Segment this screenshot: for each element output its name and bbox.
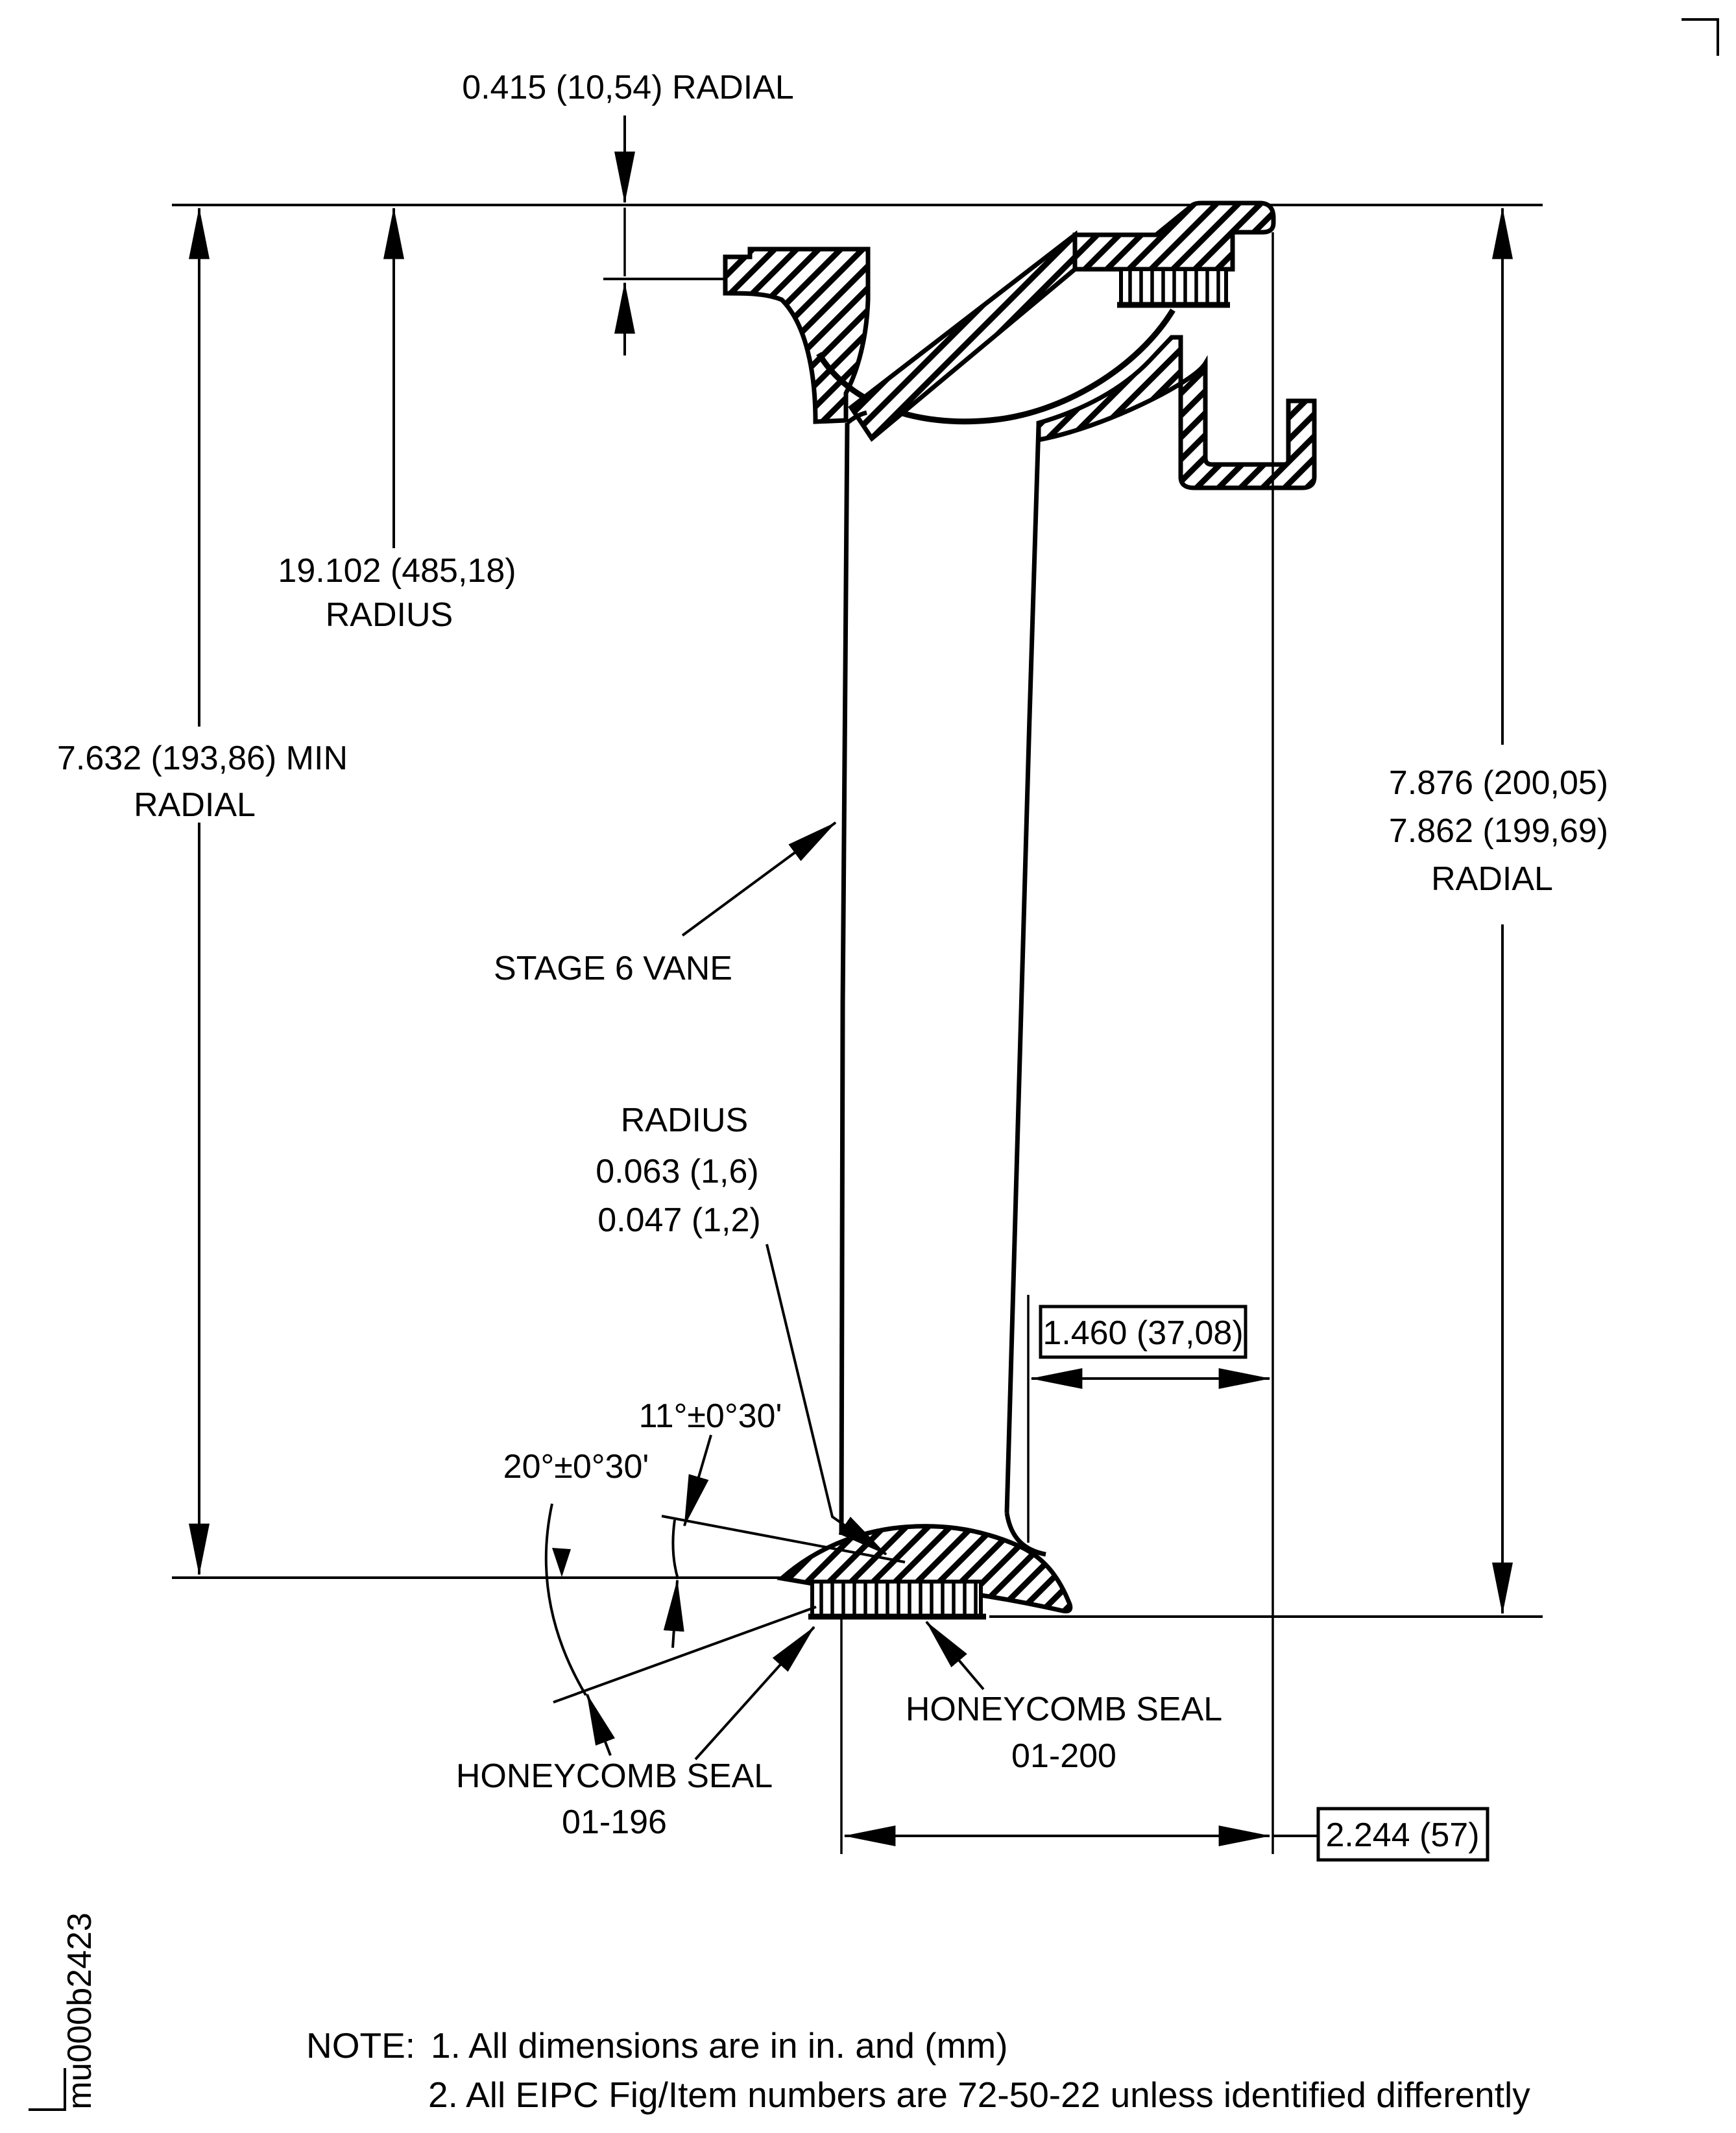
angle-20-arc <box>546 1504 586 1695</box>
radius-leader <box>767 1244 886 1554</box>
honeycomb-seal-lower <box>812 1582 981 1617</box>
left-flange-section <box>725 249 868 422</box>
note-1: 1. All dimensions are in in. and (mm) <box>431 2025 1008 2066</box>
seal-196-leader <box>695 1627 814 1759</box>
dim-2244: 2.244 (57) <box>845 1809 1488 1860</box>
dim-7876-radial: 7.876 (200,05) 7.862 (199,69) RADIAL <box>1389 208 1608 1613</box>
dim-7876-line1: 7.876 (200,05) <box>1389 764 1608 802</box>
honeycomb-seal-200-callout: HONEYCOMB SEAL 01-200 <box>906 1622 1222 1775</box>
seal-200-label-line1: HONEYCOMB SEAL <box>906 1691 1222 1728</box>
dim-7876-line3: RADIAL <box>1431 860 1553 898</box>
angle-11-leader <box>684 1435 711 1526</box>
dim-7632-line1: 7.632 (193,86) MIN <box>57 740 348 777</box>
dim-0415-radial: 0.415 (10,54) RADIAL <box>462 69 794 356</box>
stage6-vane-callout: STAGE 6 VANE <box>494 823 836 987</box>
outer-case-section <box>725 203 1314 488</box>
angle-20-ray <box>553 1607 816 1702</box>
vane-leading-edge <box>841 423 847 1535</box>
radius-label-line2: 0.063 (1,6) <box>596 1153 759 1190</box>
dim-1460-label: 1.460 (37,08) <box>1043 1314 1243 1352</box>
stage6-vane-leader <box>682 823 836 935</box>
angle-11-label: 11°±0°30' <box>639 1397 782 1435</box>
honeycomb-seal-upper <box>1121 269 1226 305</box>
dim-7632-radial: 7.632 (193,86) MIN RADIAL <box>57 208 348 1574</box>
corner-mark-top-right <box>1682 19 1718 56</box>
seal-196-label-line2: 01-196 <box>562 1803 667 1841</box>
angle-20-label: 20°±0°30' <box>503 1448 649 1486</box>
vane-trailing-edge <box>1007 425 1039 1513</box>
angle-11-arc <box>673 1520 678 1579</box>
dim-7876-line2: 7.862 (199,69) <box>1389 812 1608 850</box>
seal-196-label-line1: HONEYCOMB SEAL <box>456 1757 773 1795</box>
angle-20-arrowhead-bottom <box>587 1694 610 1755</box>
dim-1460: 1.460 (37,08) <box>1031 1307 1270 1379</box>
engineering-drawing-canvas: 7.632 (193,86) MIN RADIAL 19.102 (485,18… <box>0 0 1736 2133</box>
seal-200-leader <box>926 1622 983 1689</box>
seal-200-label-line2: 01-200 <box>1011 1737 1116 1775</box>
corner-mark-bottom-left <box>29 2068 65 2110</box>
honeycomb-seal-196-callout: HONEYCOMB SEAL 01-196 <box>456 1627 814 1841</box>
dim-19102-radius: 19.102 (485,18) RADIUS <box>278 208 516 634</box>
case-flange-section <box>1075 203 1273 269</box>
dim-7632-line2: RADIAL <box>134 786 256 824</box>
note-2: 2. All EIPC Fig/Item numbers are 72-50-2… <box>428 2075 1530 2115</box>
radius-label-line1: RADIUS <box>621 1102 748 1139</box>
stage6-vane-airfoil <box>841 413 1046 1554</box>
angle-20-dimension: 20°±0°30' <box>503 1448 816 1755</box>
note-label: NOTE: <box>306 2025 415 2066</box>
stage6-vane-label: STAGE 6 VANE <box>494 950 732 987</box>
dim-0415-label: 0.415 (10,54) RADIAL <box>462 69 794 106</box>
radius-label-line3: 0.047 (1,2) <box>597 1201 761 1239</box>
dim-19102-line2: RADIUS <box>326 596 453 634</box>
inner-platform-section <box>782 1526 1070 1617</box>
angle-11-arrow-up <box>673 1580 677 1648</box>
figure-id-watermark: mu000b2423 <box>61 1912 99 2110</box>
dim-2244-label: 2.244 (57) <box>1325 1816 1479 1854</box>
notes-block: NOTE: 1. All dimensions are in in. and (… <box>306 2025 1530 2115</box>
dim-19102-line1: 19.102 (485,18) <box>278 552 516 590</box>
angle-20-arrowhead-top <box>552 1548 571 1577</box>
